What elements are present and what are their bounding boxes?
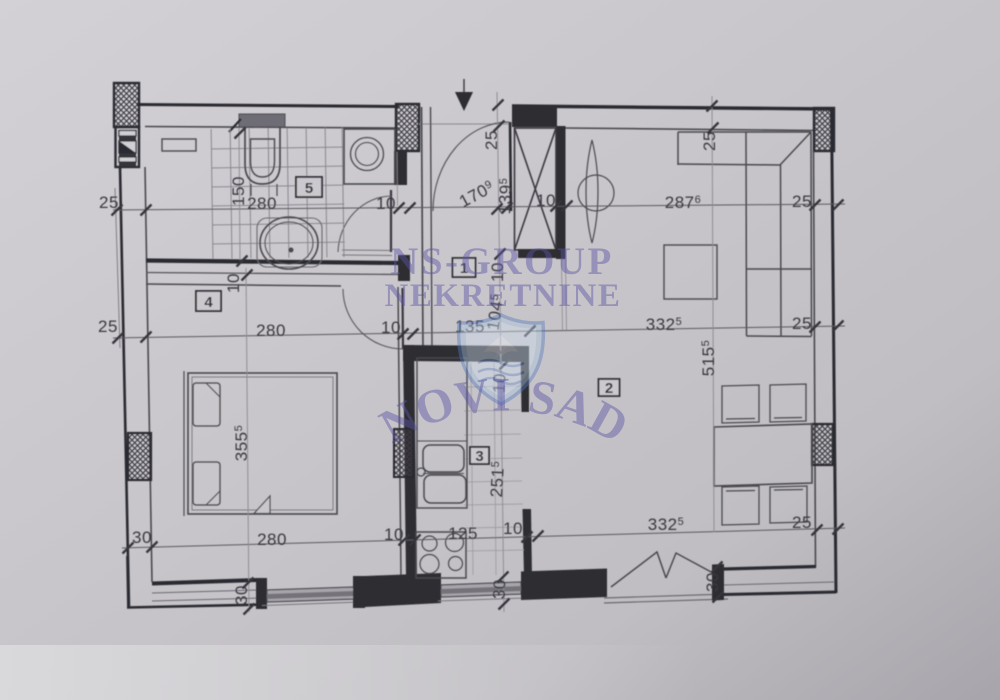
svg-text:125: 125	[448, 524, 478, 543]
svg-text:25: 25	[99, 193, 119, 212]
svg-text:25: 25	[792, 513, 812, 532]
svg-text:25: 25	[792, 192, 812, 211]
svg-text:30: 30	[132, 528, 152, 547]
svg-text:NS-GROUP: NS-GROUP	[390, 240, 614, 283]
svg-text:4: 4	[204, 294, 213, 311]
svg-text:25: 25	[482, 130, 501, 150]
svg-text:25: 25	[98, 317, 118, 336]
svg-text:10: 10	[536, 191, 556, 210]
svg-text:10: 10	[503, 519, 523, 538]
svg-text:280: 280	[247, 194, 277, 213]
svg-text:NEKRETNINE: NEKRETNINE	[385, 278, 622, 314]
svg-text:5: 5	[305, 180, 313, 197]
svg-text:30: 30	[489, 579, 509, 600]
svg-text:150: 150	[229, 176, 248, 206]
svg-text:280: 280	[257, 530, 287, 549]
svg-text:25: 25	[792, 314, 812, 333]
svg-text:25: 25	[700, 131, 719, 151]
svg-text:10: 10	[224, 273, 243, 293]
svg-text:280: 280	[256, 321, 286, 340]
svg-text:3: 3	[475, 448, 483, 465]
svg-text:10: 10	[384, 525, 404, 544]
svg-text:30: 30	[703, 572, 722, 592]
svg-text:10: 10	[381, 318, 401, 337]
svg-text:30: 30	[232, 585, 251, 605]
svg-text:10: 10	[376, 194, 396, 213]
